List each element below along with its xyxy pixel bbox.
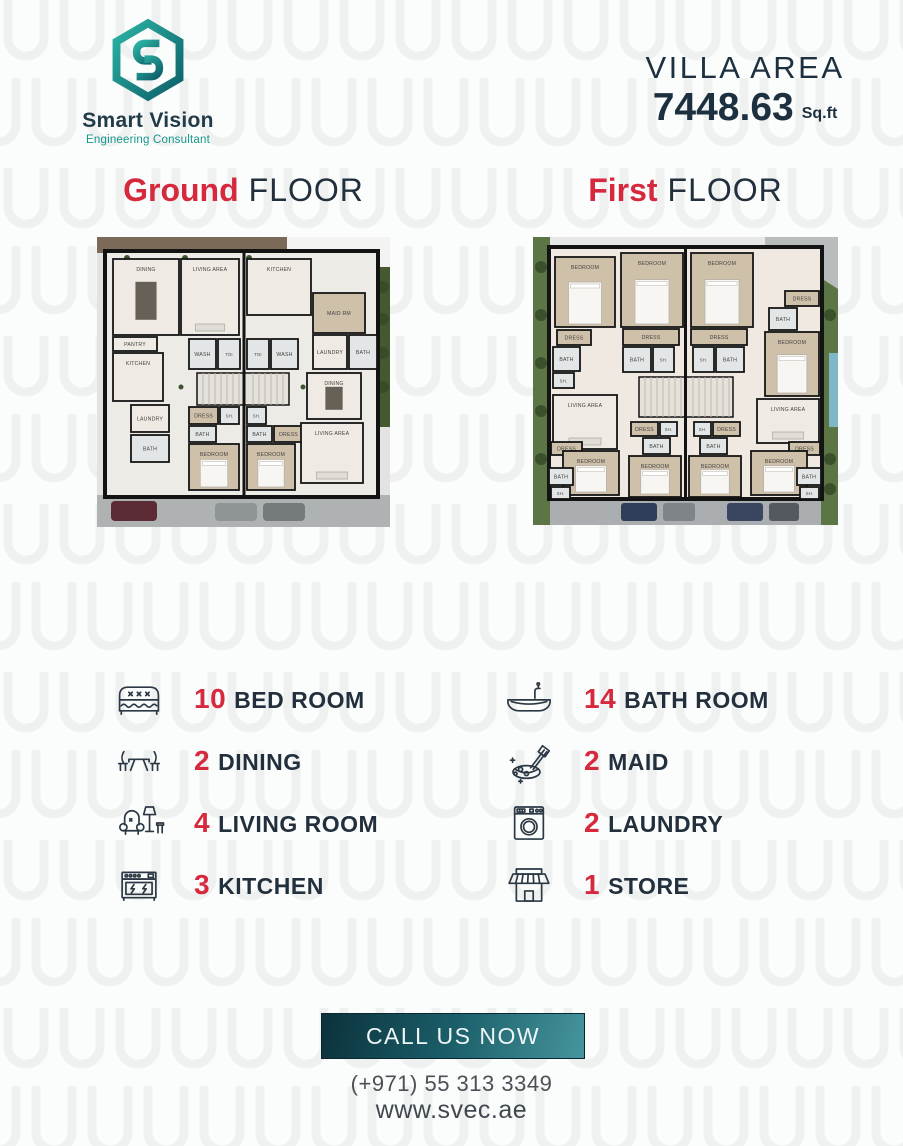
- ground-floor-title-rest: FLOOR: [249, 172, 364, 209]
- bed: [705, 280, 739, 324]
- room-label: DRESS: [565, 335, 584, 341]
- room-label: DRESS: [710, 335, 729, 341]
- room-label: BATH: [559, 357, 573, 363]
- pillow: [578, 468, 605, 472]
- feature-text: 1STORE: [584, 869, 689, 901]
- room-label: LAUNDRY: [317, 350, 343, 356]
- villa-area-unit: Sq.ft: [802, 105, 838, 127]
- room-label: WASH: [276, 352, 292, 358]
- feature-label: LIVING ROOM: [218, 811, 378, 837]
- room-label: DRESS: [635, 427, 654, 433]
- pillow: [202, 461, 226, 465]
- room-label: BEDROOM: [577, 459, 605, 465]
- washing-machine-icon: [502, 796, 556, 850]
- feature-label: BATH ROOM: [624, 687, 769, 713]
- room-label: KITCHEN: [126, 361, 150, 367]
- pillow: [707, 282, 737, 286]
- first-floor-title-accent: First: [588, 172, 657, 209]
- room-label: DINING: [136, 267, 155, 273]
- room-label: DRESS: [793, 296, 812, 302]
- room-label: BATH: [776, 317, 790, 323]
- room-label: KITCHEN: [267, 267, 291, 273]
- room-label: SH.: [699, 427, 707, 432]
- feature-dining: 2DINING: [112, 730, 502, 792]
- bed: [635, 280, 669, 324]
- room-label: SH.: [665, 427, 673, 432]
- feature-label: KITCHEN: [218, 873, 324, 899]
- feature-text: 4LIVING ROOM: [194, 807, 378, 839]
- sofa: [317, 472, 348, 479]
- bathtub-icon: [502, 672, 556, 726]
- first-floor-title-rest: FLOOR: [668, 172, 783, 209]
- room-label: DRESS: [642, 335, 661, 341]
- room-label: LAUNDRY: [137, 416, 163, 422]
- room-label: BEDROOM: [701, 464, 729, 470]
- room-label: BEDROOM: [778, 340, 806, 346]
- dining-table-icon: [112, 734, 166, 788]
- room-label: BEDROOM: [708, 261, 736, 267]
- feature-text: 2DINING: [194, 745, 302, 777]
- room-label: DRESS: [717, 427, 736, 433]
- feature-count: 1: [584, 869, 600, 900]
- feature-count: 14: [584, 683, 616, 714]
- feature-label: BED ROOM: [234, 687, 365, 713]
- feature-label: DINING: [218, 749, 302, 775]
- feature-bathroom: 14BATH ROOM: [502, 668, 812, 730]
- room-label: DINING: [324, 381, 343, 387]
- room-label: BEDROOM: [257, 452, 285, 458]
- bed-icon: [112, 672, 166, 726]
- cleaning-bucket-icon: [502, 734, 556, 788]
- feature-count: 2: [194, 745, 210, 776]
- brand-name: Smart Vision: [36, 109, 260, 133]
- brand-logo: Smart Vision Engineering Consultant: [36, 18, 260, 146]
- brand-tagline: Engineering Consultant: [36, 134, 260, 146]
- room-label: BATH: [195, 432, 209, 438]
- ground-floor-plan: DININGLIVING AREAKITCHENMAID RMLAUNDRYBA…: [97, 237, 390, 527]
- room-label: PANTRY: [124, 342, 146, 348]
- ground-floor-title-accent: Ground: [123, 172, 239, 209]
- feature-text: 3KITCHEN: [194, 869, 324, 901]
- feature-living-room: 4LIVING ROOM: [112, 792, 502, 854]
- pillow: [703, 471, 728, 475]
- feature-list: 10BED ROOM 14BATH ROOM 2DINING: [112, 668, 812, 916]
- room-label: MAID RM: [327, 311, 351, 317]
- flyer-page: Smart Vision Engineering Consultant VILL…: [0, 0, 903, 1146]
- feature-count: 10: [194, 683, 226, 714]
- room-label: BATH: [143, 446, 157, 452]
- room-label: LIVING AREA: [315, 431, 350, 437]
- room-label: BATH: [649, 444, 663, 450]
- feature-kitchen: 3KITCHEN: [112, 854, 502, 916]
- pillow: [260, 461, 282, 465]
- room-label: BEDROOM: [638, 261, 666, 267]
- room-label: DRESS: [279, 432, 298, 438]
- feature-count: 3: [194, 869, 210, 900]
- room-label: BATH: [706, 444, 720, 450]
- stove-icon: [112, 858, 166, 912]
- website-url: www.svec.ae: [0, 1096, 903, 1125]
- feature-label: STORE: [608, 873, 689, 899]
- feature-bedroom: 10BED ROOM: [112, 668, 502, 730]
- pillow: [571, 284, 600, 288]
- room-label: BEDROOM: [765, 459, 793, 465]
- room-label: SH.: [660, 357, 668, 362]
- pillow: [637, 282, 667, 286]
- room-label: BATH: [252, 432, 266, 438]
- pillow: [779, 357, 805, 361]
- first-floor-title: First FLOOR: [533, 168, 838, 212]
- room-label: WASH: [194, 352, 210, 358]
- sofa: [773, 432, 804, 439]
- room-label: DRESS: [194, 413, 213, 419]
- room-label: TOI: [225, 352, 233, 357]
- villa-area-value: 7448.63: [653, 88, 794, 127]
- feature-text: 14BATH ROOM: [584, 683, 769, 715]
- feature-count: 4: [194, 807, 210, 838]
- first-floor-plan: BEDROOMBEDROOMBEDROOMDRESSBATHBEDROOMDRE…: [533, 237, 838, 525]
- room-label: TOI: [254, 352, 262, 357]
- room-label: BATH: [723, 357, 737, 363]
- room-label: SH.: [806, 491, 814, 496]
- armchair-icon: [112, 796, 166, 850]
- sofa: [196, 324, 225, 331]
- feature-text: 2MAID: [584, 745, 669, 777]
- feature-count: 2: [584, 807, 600, 838]
- room-label: SH.: [557, 491, 565, 496]
- feature-text: 10BED ROOM: [194, 683, 365, 715]
- dining-table: [325, 387, 342, 410]
- villa-area: VILLA AREA 7448.63 Sq.ft: [600, 50, 890, 127]
- room-label: BATH: [356, 350, 370, 356]
- room-label: LIVING AREA: [193, 267, 228, 273]
- room-label: SH.: [700, 357, 708, 362]
- feature-store: 1STORE: [502, 854, 812, 916]
- room-label: BEDROOM: [571, 265, 599, 271]
- room-label: BATH: [554, 474, 568, 480]
- room-label: BATH: [630, 357, 644, 363]
- feature-maid: 2MAID: [502, 730, 812, 792]
- room-label: LIVING AREA: [771, 407, 806, 413]
- feature-laundry: 2LAUNDRY: [502, 792, 812, 854]
- storefront-icon: [502, 858, 556, 912]
- feature-count: 2: [584, 745, 600, 776]
- room-label: BEDROOM: [200, 452, 228, 458]
- dining-table: [135, 282, 156, 320]
- feature-label: LAUNDRY: [608, 811, 723, 837]
- pillow: [643, 471, 668, 475]
- room-label: SH.: [560, 378, 568, 383]
- feature-text: 2LAUNDRY: [584, 807, 723, 839]
- feature-label: MAID: [608, 749, 669, 775]
- pillow: [766, 468, 793, 472]
- room-label: LIVING AREA: [568, 403, 603, 409]
- ground-floor-title: Ground FLOOR: [97, 168, 390, 212]
- room-label: SH.: [226, 413, 234, 418]
- room-label: BATH: [802, 474, 816, 480]
- call-us-now-button[interactable]: CALL US NOW: [321, 1013, 585, 1059]
- villa-area-label: VILLA AREA: [600, 50, 890, 86]
- smart-vision-logo-icon: [104, 18, 192, 102]
- room-label: SH.: [253, 413, 261, 418]
- phone-number: (+971) 55 313 3349: [0, 1071, 903, 1097]
- room-label: BEDROOM: [641, 464, 669, 470]
